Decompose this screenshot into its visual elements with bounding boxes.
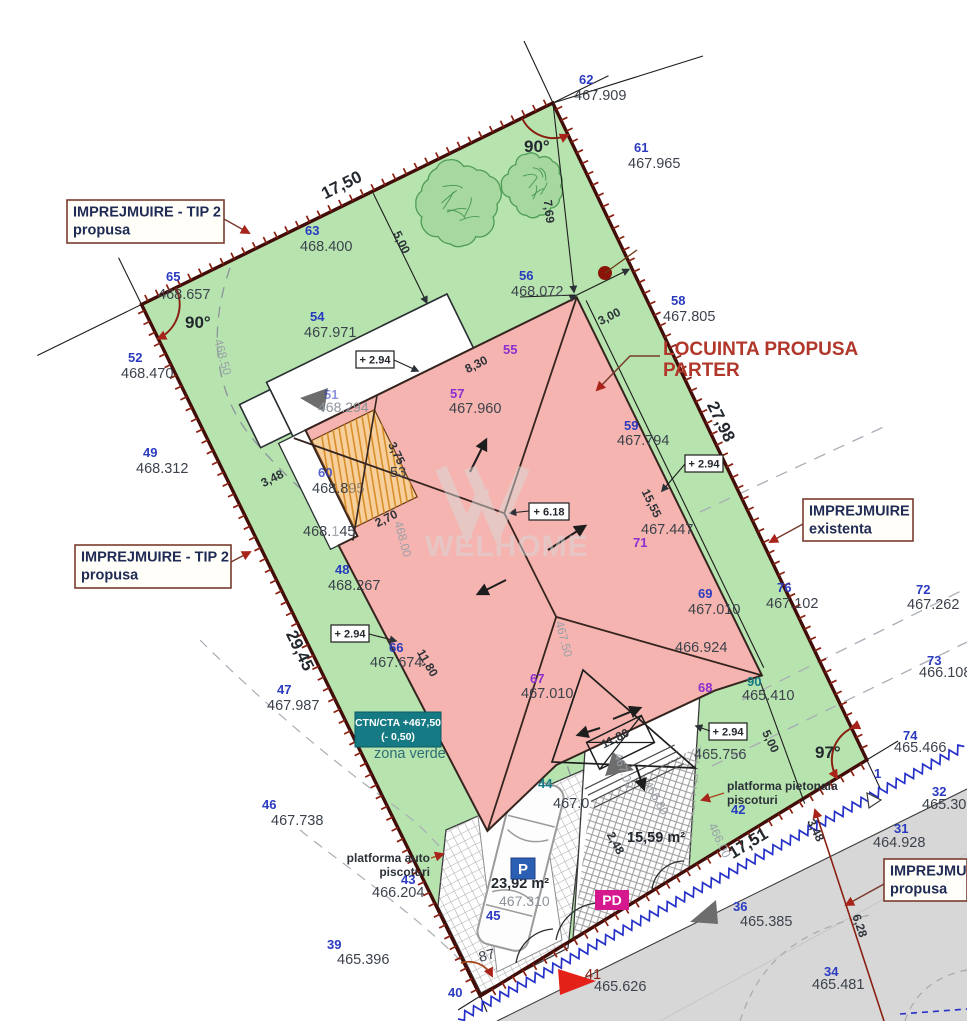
svg-text:propusa: propusa — [73, 223, 131, 239]
svg-text:1: 1 — [874, 766, 881, 781]
svg-text:+ 2.94: + 2.94 — [335, 629, 367, 641]
svg-text:467.010: 467.010 — [521, 686, 573, 702]
svg-text:propusa: propusa — [81, 568, 139, 584]
svg-text:72: 72 — [916, 582, 930, 597]
svg-text:465.466: 465.466 — [894, 740, 946, 756]
svg-text:468.470: 468.470 — [121, 366, 173, 382]
svg-text:465.306: 465.306 — [922, 797, 967, 813]
svg-text:+ 6.18: + 6.18 — [534, 507, 565, 519]
svg-text:48: 48 — [335, 562, 349, 577]
svg-text:65: 65 — [166, 269, 180, 284]
svg-text:468.145: 468.145 — [303, 524, 355, 540]
svg-text:465.410: 465.410 — [742, 688, 794, 704]
svg-text:467.805: 467.805 — [663, 309, 715, 325]
svg-text:36: 36 — [733, 899, 747, 914]
svg-text:467.102: 467.102 — [766, 596, 818, 612]
svg-text:platforma auto: platforma auto — [347, 851, 430, 865]
svg-text:468.267: 468.267 — [328, 578, 380, 594]
svg-text:62: 62 — [579, 72, 593, 87]
svg-text:467.0: 467.0 — [553, 796, 589, 812]
svg-text:piscoturi: piscoturi — [727, 793, 778, 807]
svg-text:467.794: 467.794 — [617, 433, 669, 449]
svg-text:+ 2.94: + 2.94 — [360, 355, 392, 367]
svg-text:LOCUINTA PROPUSA: LOCUINTA PROPUSA — [663, 339, 859, 360]
svg-text:69: 69 — [698, 586, 712, 601]
svg-text:40: 40 — [448, 985, 462, 1000]
svg-text:56: 56 — [519, 268, 533, 283]
svg-text:IMPREJMUIRE - TIP 2: IMPREJMUIRE - TIP 2 — [73, 205, 221, 221]
svg-text:465.756: 465.756 — [694, 747, 746, 763]
svg-text:467.909: 467.909 — [574, 88, 626, 104]
svg-text:54: 54 — [310, 309, 325, 324]
svg-text:55: 55 — [503, 342, 517, 357]
svg-text:466.204: 466.204 — [372, 885, 424, 901]
svg-text:467.960: 467.960 — [449, 401, 501, 417]
svg-text:47: 47 — [277, 682, 291, 697]
svg-text:467.674: 467.674 — [370, 655, 422, 671]
svg-text:(- 0,50): (- 0,50) — [381, 731, 415, 743]
svg-text:CTN/CTA +467,50: CTN/CTA +467,50 — [355, 717, 441, 729]
svg-text:68: 68 — [698, 680, 712, 695]
svg-text:+ 2.94: + 2.94 — [713, 727, 745, 739]
svg-text:PARTER: PARTER — [663, 360, 740, 381]
svg-text:67: 67 — [530, 671, 544, 686]
svg-text:90: 90 — [747, 674, 761, 689]
svg-text:60: 60 — [318, 465, 332, 480]
svg-text:52: 52 — [128, 350, 142, 365]
svg-text:468.895: 468.895 — [312, 481, 364, 497]
svg-text:467.738: 467.738 — [271, 813, 323, 829]
svg-text:58: 58 — [671, 293, 685, 308]
svg-text:66: 66 — [389, 640, 403, 655]
svg-text:53: 53 — [390, 465, 406, 481]
svg-text:WELHOME: WELHOME — [425, 530, 589, 563]
svg-text:468.072: 468.072 — [511, 284, 563, 300]
svg-text:468.294: 468.294 — [318, 399, 369, 415]
svg-text:platforma pietonala: platforma pietonala — [727, 779, 838, 793]
svg-text:97°: 97° — [815, 743, 841, 762]
svg-text:464.928: 464.928 — [873, 835, 925, 851]
svg-text:76: 76 — [777, 580, 791, 595]
svg-text:existenta: existenta — [809, 522, 873, 538]
svg-text:61: 61 — [634, 140, 648, 155]
svg-text:45: 45 — [486, 908, 500, 923]
svg-text:467.971: 467.971 — [304, 325, 356, 341]
svg-text:7,69: 7,69 — [541, 199, 558, 224]
svg-text:39: 39 — [327, 937, 341, 952]
svg-text:465.481: 465.481 — [812, 977, 864, 993]
svg-text:P: P — [518, 861, 528, 878]
svg-text:15,59 m²: 15,59 m² — [627, 830, 685, 846]
svg-text:90°: 90° — [185, 313, 211, 332]
svg-text:49: 49 — [143, 445, 157, 460]
svg-text:465.626: 465.626 — [594, 979, 646, 995]
svg-text:57: 57 — [450, 386, 464, 401]
svg-text:propusa: propusa — [890, 882, 948, 898]
svg-text:46: 46 — [262, 797, 276, 812]
svg-text:468.312: 468.312 — [136, 461, 188, 477]
svg-text:465.385: 465.385 — [740, 914, 792, 930]
svg-text:466.108: 466.108 — [919, 665, 967, 681]
svg-text:PD: PD — [602, 892, 621, 908]
svg-text:63: 63 — [305, 223, 319, 238]
svg-text:467.262: 467.262 — [907, 597, 959, 613]
svg-text:59: 59 — [624, 418, 638, 433]
svg-text:467.310: 467.310 — [499, 893, 550, 909]
svg-text:IMPREJMUIRE: IMPREJMUIRE — [890, 864, 967, 880]
svg-text:90°: 90° — [524, 137, 550, 156]
svg-text:zona verde: zona verde — [374, 746, 446, 762]
svg-text:468.400: 468.400 — [300, 239, 352, 255]
svg-text:467.010: 467.010 — [688, 602, 740, 618]
svg-text:IMPREJMUIRE: IMPREJMUIRE — [809, 504, 910, 520]
svg-text:465.396: 465.396 — [337, 952, 389, 968]
svg-text:IMPREJMUIRE - TIP 2: IMPREJMUIRE - TIP 2 — [81, 550, 229, 566]
svg-text:+ 2.94: + 2.94 — [689, 459, 721, 471]
svg-text:468.657: 468.657 — [158, 287, 210, 303]
svg-text:piscoturi: piscoturi — [379, 865, 430, 879]
svg-text:467.987: 467.987 — [267, 698, 319, 714]
svg-text:467.447: 467.447 — [641, 522, 693, 538]
svg-text:44: 44 — [538, 776, 553, 791]
svg-text:467.965: 467.965 — [628, 156, 680, 172]
svg-text:466.924: 466.924 — [675, 640, 727, 656]
svg-text:31: 31 — [894, 821, 908, 836]
